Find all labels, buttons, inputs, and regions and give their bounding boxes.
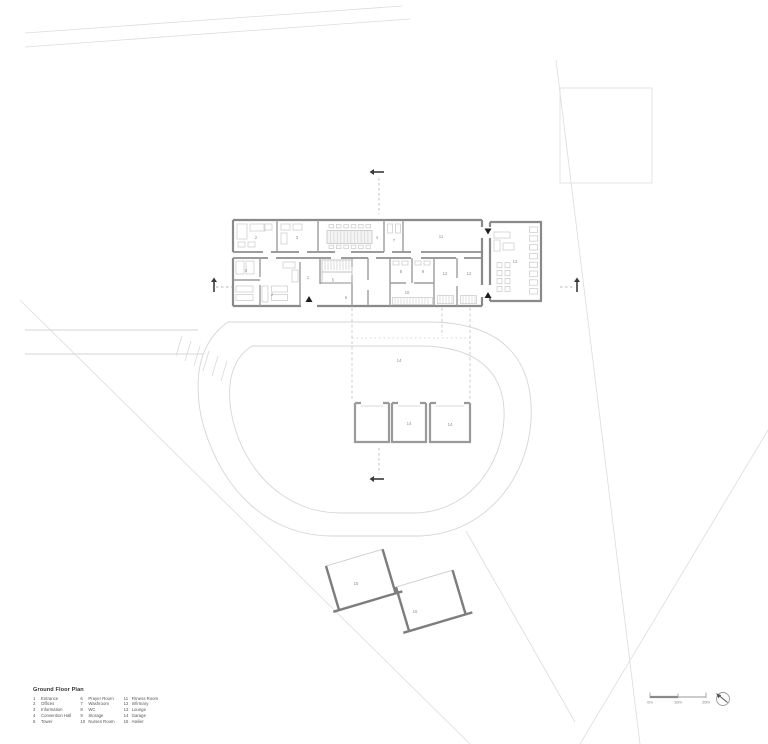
room-number-14: 14	[397, 358, 402, 363]
atelier-building-2	[390, 568, 472, 633]
room-number-3: 3	[296, 235, 299, 240]
scale-bar: 0m 10m 20m	[647, 693, 709, 705]
title-block: Ground Floor Plan 1Entrance 2Offices 3In…	[33, 687, 158, 725]
stair	[322, 260, 352, 283]
room-number-5: 5	[332, 278, 335, 283]
legend-item: 15Atelier	[124, 719, 159, 725]
section-marker-left	[211, 278, 232, 293]
drawing-title: Ground Floor Plan	[33, 687, 158, 693]
section-marker-bottom	[370, 448, 385, 482]
room-number-9: 9	[422, 269, 425, 274]
north-compass-icon	[716, 693, 729, 706]
site-line-topleft-1	[25, 6, 402, 33]
scale-label-0: 0m	[647, 700, 652, 705]
entrance-arrow-lounge-top	[485, 229, 492, 235]
furniture	[236, 224, 538, 305]
room-number-13: 13	[513, 259, 518, 264]
atelier-building-1	[320, 547, 402, 612]
entrance-arrow-lounge-bottom	[485, 292, 492, 298]
site-line-left-diagonal	[20, 300, 470, 744]
site-line-right-diagonal	[556, 60, 640, 744]
room-number-15b: 15	[413, 609, 418, 614]
room-numbers: 2 3 4 7 11 13 3 2 1 5 6 8 9 10 12 12 14 …	[245, 234, 518, 614]
entrance-arrow-main	[306, 296, 313, 302]
room-number-2: 2	[255, 235, 258, 240]
legend-item: 5Tower	[33, 719, 71, 725]
legend-column-3: 11Fitness Room 12Infirmary 13Lounge 14Ga…	[124, 696, 159, 726]
site-line-topleft-2	[25, 19, 410, 47]
room-number-15a: 15	[354, 581, 359, 586]
floor-plan-canvas: 2 3 4 7 11 13 3 2 1 5 6 8 9 10 12 12 14 …	[0, 0, 768, 744]
section-marker-top	[370, 169, 385, 214]
room-number-8: 8	[400, 269, 403, 274]
room-number-10: 10	[405, 290, 410, 295]
room-number-4: 4	[376, 235, 379, 240]
room-number-1: 1	[307, 275, 310, 280]
room-number-12a: 12	[443, 271, 448, 276]
legend-column-2: 6Prayer Room 7Washroom 8WC 9Storage 10Nu…	[80, 696, 114, 726]
corridor-walls	[233, 252, 482, 258]
scale-label-10: 10m	[674, 700, 682, 705]
legend-item: 10Nurses Room	[80, 719, 114, 725]
garage-boxes	[355, 403, 470, 442]
room-number-12b: 12	[467, 271, 472, 276]
scale-label-20: 20m	[702, 700, 710, 705]
road-loop-outer	[198, 322, 531, 536]
room-number-6: 6	[345, 295, 348, 300]
room-number-garage-b: 14	[407, 421, 412, 426]
room-number-garage-c: 14	[448, 422, 453, 427]
legend-column-1: 1Entrance 2Offices 3Information 4Convent…	[33, 696, 71, 726]
room-number-11: 11	[439, 234, 444, 239]
site-plan-svg: 2 3 4 7 11 13 3 2 1 5 6 8 9 10 12 12 14 …	[0, 0, 768, 744]
legend: 1Entrance 2Offices 3Information 4Convent…	[33, 696, 158, 726]
road-exit-south	[466, 531, 575, 722]
section-marker-right	[560, 278, 580, 293]
room-number-7: 7	[393, 238, 396, 243]
road-loop-inner	[230, 346, 505, 513]
site-boundary-lines	[20, 6, 768, 744]
road-network	[25, 322, 575, 722]
room-number-3b: 3	[245, 268, 248, 273]
site-parcel-topright	[560, 88, 652, 183]
